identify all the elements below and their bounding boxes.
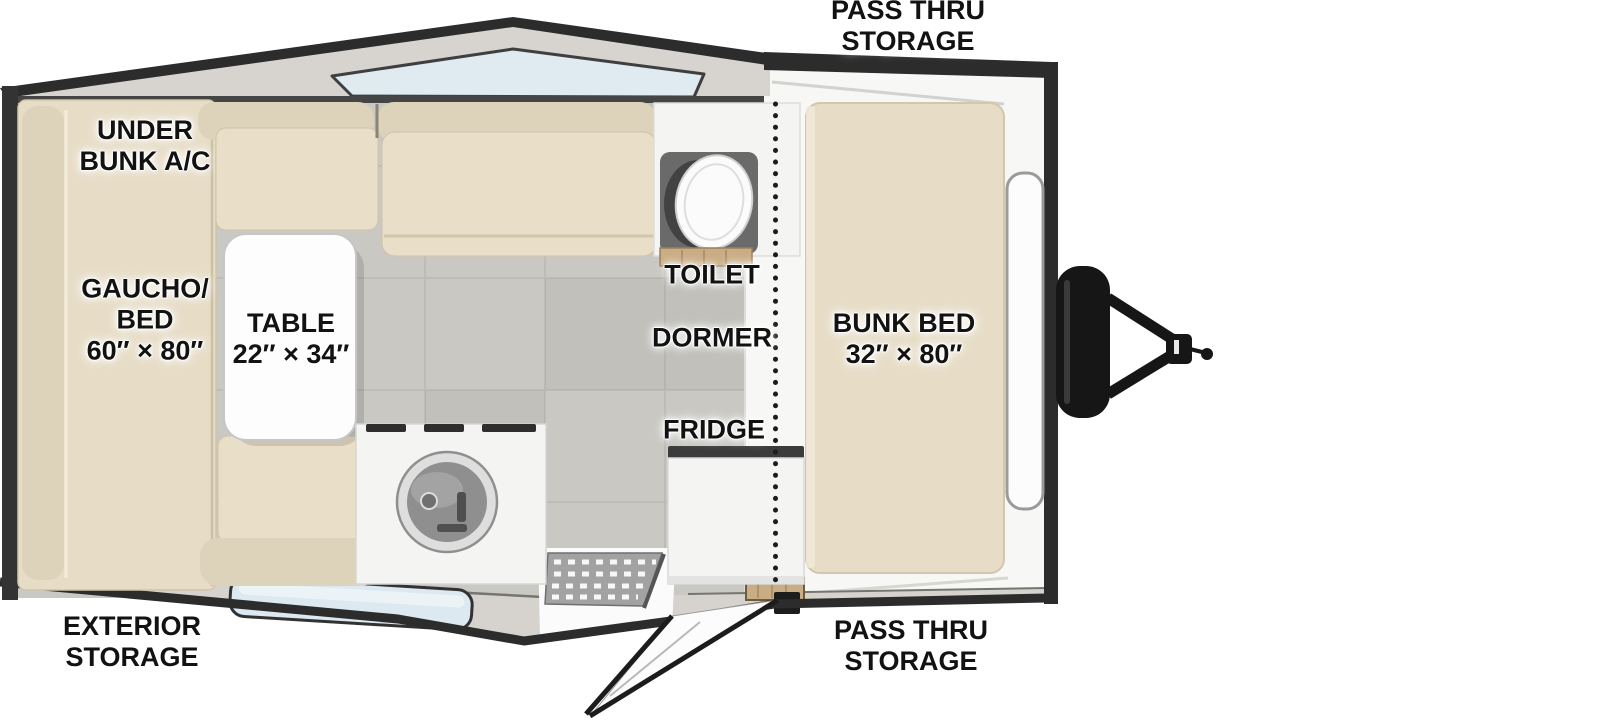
counter-vent <box>424 424 464 432</box>
label-line: UNDER <box>80 115 211 146</box>
toilet-cabinet <box>654 103 800 266</box>
sofa <box>377 102 656 256</box>
sink-drain <box>421 493 437 509</box>
bunk-highlight <box>806 106 815 568</box>
fridge-base-shadow <box>668 576 804 584</box>
label-line: FRIDGE <box>663 415 765 446</box>
front-window <box>1007 173 1043 509</box>
label-line: EXTERIOR <box>63 611 201 642</box>
label-line: PASS THRU <box>831 0 985 26</box>
faucet-handle <box>457 492 466 522</box>
label-under-bunk-ac: UNDER BUNK A/C <box>80 115 211 177</box>
front-wall <box>1044 62 1058 604</box>
counter-vent <box>366 424 406 432</box>
label-dinette-table: TABLE 22″ × 34″ <box>233 308 350 370</box>
tank-highlight <box>1064 280 1070 404</box>
jack-wheel <box>1201 348 1213 360</box>
label-line: STORAGE <box>831 26 985 57</box>
rear-wall <box>2 86 18 600</box>
floorplan-canvas: PASS THRU STORAGE UNDER BUNK A/C GAUCHO/… <box>0 0 1600 722</box>
dinette-seat-bottom <box>218 436 378 542</box>
label-exterior-storage: EXTERIOR STORAGE <box>63 611 201 673</box>
label-fridge: FRIDGE <box>663 415 765 446</box>
label-gaucho-bed: GAUCHO/ BED 60″ × 80″ <box>81 274 209 367</box>
label-pass-thru-storage-bottom: PASS THRU STORAGE <box>834 615 988 677</box>
label-line: BUNK BED <box>833 308 976 339</box>
label-dormer: DORMER <box>652 323 772 354</box>
dinette-seatback-bottom <box>200 538 378 586</box>
label-toilet: TOILET <box>664 260 760 291</box>
label-line: STORAGE <box>63 642 201 673</box>
entry-step-mat <box>545 553 664 608</box>
dinette-seat-top <box>216 128 378 230</box>
label-line: TOILET <box>664 260 760 291</box>
gaucho-backrest <box>22 106 64 580</box>
coupler-slit <box>1174 340 1179 354</box>
counter-vent <box>482 424 536 432</box>
label-line: 32″ × 80″ <box>833 339 976 370</box>
label-line: TABLE <box>233 308 350 339</box>
label-line: BUNK A/C <box>80 146 211 177</box>
label-pass-thru-storage-top: PASS THRU STORAGE <box>831 0 985 57</box>
label-line: GAUCHO/ <box>81 274 209 305</box>
label-line: 60″ × 80″ <box>81 336 209 367</box>
faucet-spout <box>437 524 467 532</box>
label-line: PASS THRU <box>834 615 988 646</box>
sink-cabinet <box>356 424 546 584</box>
label-line: STORAGE <box>834 646 988 677</box>
label-line: DORMER <box>652 323 772 354</box>
label-bunk-bed: BUNK BED 32″ × 80″ <box>833 308 976 370</box>
fridge <box>668 446 804 584</box>
label-line: 22″ × 34″ <box>233 339 350 370</box>
label-line: BED <box>81 305 209 336</box>
trailer-tongue <box>1056 266 1213 418</box>
